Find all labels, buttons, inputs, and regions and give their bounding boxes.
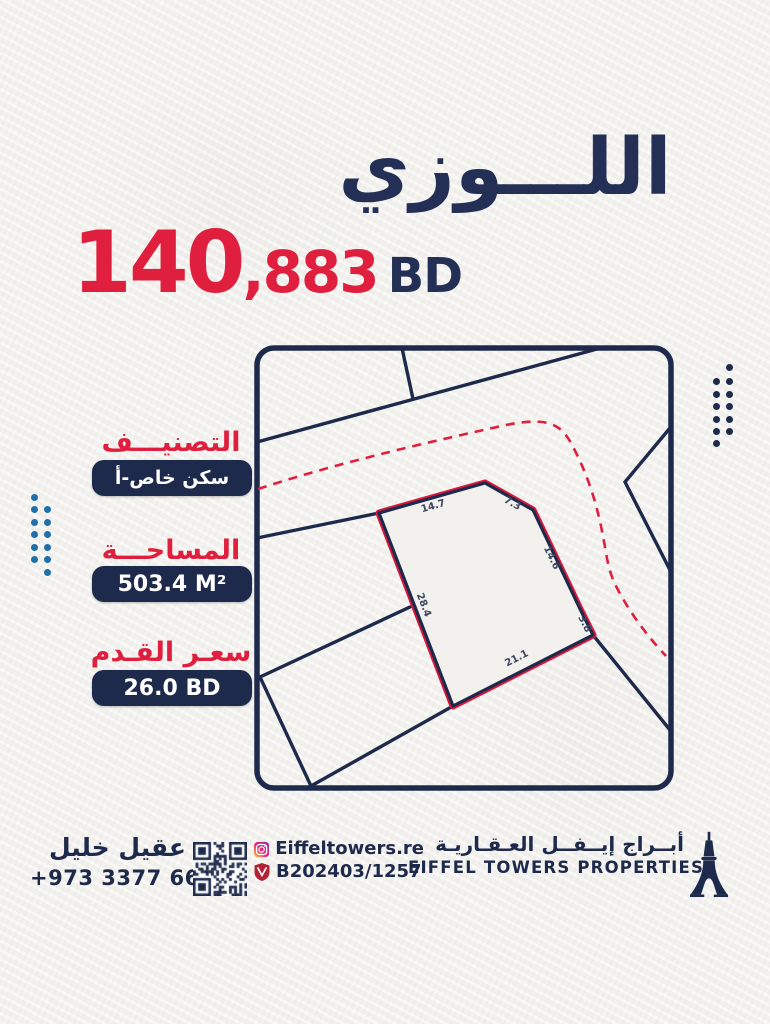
decor-dot: [44, 556, 51, 563]
price-per-foot-label: سعـر القـدم: [88, 638, 254, 668]
instagram-row: Eiffeltowers.re: [254, 840, 424, 858]
classification-label: التصنيـــف: [88, 428, 254, 458]
area-label: المساحـــة: [88, 536, 254, 566]
decor-dot: [713, 428, 720, 435]
license-row: B202403/1257: [254, 863, 424, 881]
price-main: 140: [72, 220, 243, 306]
decor-dot: [726, 403, 733, 410]
price-block: 140 ,883 BD: [72, 220, 462, 306]
decor-dot: [713, 403, 720, 410]
decor-dot: [713, 416, 720, 423]
decor-dot: [31, 544, 38, 551]
license-number: B202403/1257: [276, 863, 422, 881]
instagram-icon: [254, 841, 269, 858]
classification-value: سكن خاص-أ: [92, 460, 252, 496]
decor-dot: [44, 506, 51, 513]
decor-dot: [44, 544, 51, 551]
decor-dot: [44, 569, 51, 576]
qr-code: [193, 842, 247, 896]
decor-dot: [726, 378, 733, 385]
decor-dot: [726, 428, 733, 435]
plot-map-canvas: 14.7 7.3 14.6 3.8 21.1 28.4: [254, 341, 674, 791]
decor-dot: [713, 378, 720, 385]
agent-name: عقيل خليل: [30, 834, 186, 863]
price-currency: BD: [388, 252, 462, 300]
decor-dot: [44, 519, 51, 526]
decor-dot: [713, 440, 720, 447]
page-title: اللـــوزي: [290, 126, 720, 212]
eiffel-tower-icon: [690, 830, 728, 904]
company-name-en: EIFFEL TOWERS PROPERTIES: [408, 858, 684, 877]
decor-dot: [31, 519, 38, 526]
price-rest: ,883: [243, 243, 378, 301]
decor-dot: [31, 494, 38, 501]
decor-dot: [726, 416, 733, 423]
decor-dot: [31, 531, 38, 538]
license-shield-icon: [254, 863, 270, 881]
decor-dot: [31, 556, 38, 563]
plot-map: 14.7 7.3 14.6 3.8 21.1 28.4: [254, 341, 674, 791]
company-block: أبــراج إيــفــل العـقـاريـة EIFFEL TOWE…: [408, 832, 684, 877]
decor-dot: [31, 506, 38, 513]
decor-dot: [726, 391, 733, 398]
agent-phone: +973 3377 6624: [30, 866, 186, 890]
highlighted-parcel: [379, 483, 593, 706]
decor-dot: [713, 391, 720, 398]
decor-dot: [44, 531, 51, 538]
contact-block: Eiffeltowers.re B202403/1257: [254, 840, 424, 881]
decor-dot: [726, 364, 733, 371]
area-value: 503.4 M²: [92, 566, 252, 602]
agent-block: عقيل خليل +973 3377 6624: [30, 834, 186, 890]
instagram-handle: Eiffeltowers.re: [275, 840, 424, 858]
company-name-ar: أبــراج إيــفــل العـقـاريـة: [408, 832, 684, 856]
price-per-foot-value: 26.0 BD: [92, 670, 252, 706]
